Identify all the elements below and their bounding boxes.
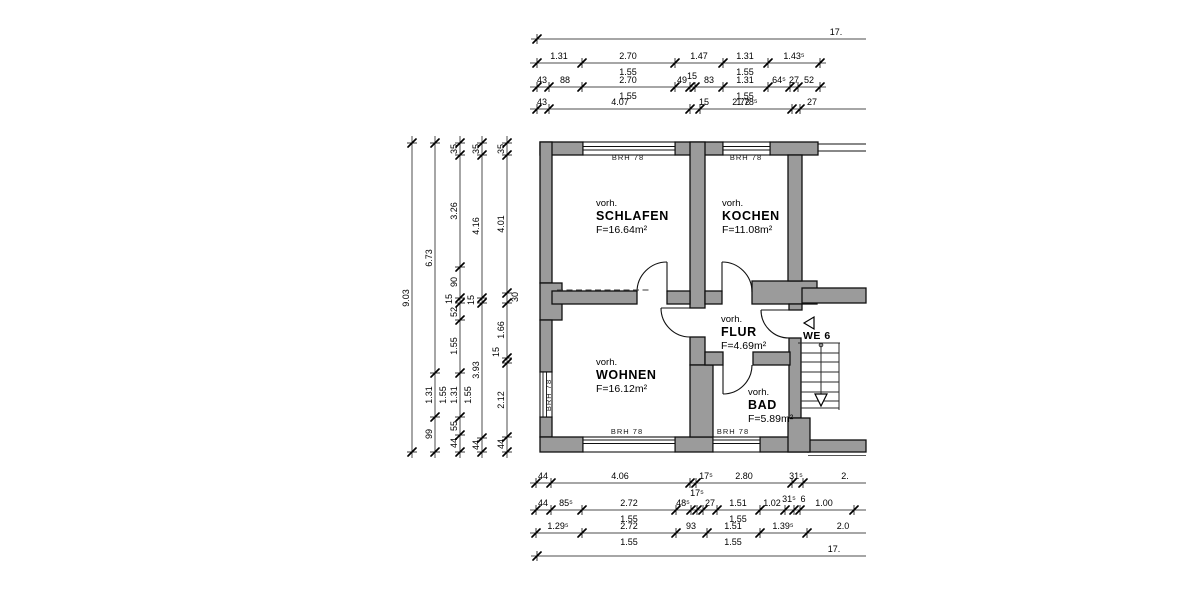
- dim-label: 27: [789, 75, 799, 85]
- wall: [789, 304, 802, 310]
- window-sill-label: BRH 78: [717, 427, 749, 436]
- dim-label: 43: [537, 97, 547, 107]
- room-area: F=16.64m²: [596, 224, 648, 236]
- dim-label: 1.43⁵: [783, 51, 805, 61]
- wall: [540, 437, 583, 452]
- dim-label: 1.47: [690, 51, 708, 61]
- room-name: WOHNEN: [596, 368, 657, 382]
- dim-label: 85⁵: [559, 498, 573, 508]
- wall: [705, 352, 723, 365]
- walls: [540, 142, 866, 452]
- dim-chain: 43882.704915831.3164⁵27521.551.55: [530, 71, 826, 101]
- dim-label: 27: [807, 97, 817, 107]
- window: [583, 437, 675, 452]
- dim-label: 2.12: [496, 391, 506, 409]
- wall: [690, 337, 705, 365]
- dim-label: 4.07: [611, 97, 629, 107]
- room-name: FLUR: [721, 325, 757, 339]
- dim-label: 3.26: [449, 202, 459, 220]
- dim-chain: 1.29⁵2.72931.511.39⁵2.01.551.55: [530, 521, 866, 547]
- window-sill-label: BRH 78: [611, 427, 643, 436]
- room-prefix: vorh.: [722, 198, 743, 209]
- dim-label: 43: [537, 75, 547, 85]
- dim-label: 93: [686, 521, 696, 531]
- stair-direction-arrow-icon: [815, 394, 827, 406]
- dim-label: 35: [449, 144, 459, 154]
- room-label: vorh.BADF=5.89m²: [748, 387, 794, 425]
- window: [713, 437, 760, 452]
- room-name: SCHLAFEN: [596, 209, 669, 223]
- dim-chain: 17.: [531, 544, 866, 561]
- dim-label: 1.55: [724, 537, 742, 547]
- apartment-label: WE 6: [803, 330, 831, 342]
- door-arc: [661, 308, 690, 337]
- dim-label: 35: [496, 144, 506, 154]
- room-label: vorh.SCHLAFENF=16.64m²: [596, 198, 669, 236]
- wall: [540, 142, 552, 283]
- dim-label: 48⁵: [676, 498, 690, 508]
- dim-label: 55: [449, 421, 459, 431]
- dim-label: 15: [687, 71, 697, 81]
- wall: [667, 291, 690, 304]
- dim-label: 17⁵: [690, 488, 704, 498]
- dim-label: 2.70: [619, 51, 637, 61]
- window-sill-label: BRH 78: [730, 153, 762, 162]
- dim-label: 1.00: [815, 498, 833, 508]
- wall: [705, 291, 722, 304]
- wall: [802, 288, 866, 303]
- dim-label: 15: [466, 295, 476, 305]
- dim-label: 1.51: [724, 521, 742, 531]
- dim-label: 49: [677, 75, 687, 85]
- dim-chain: 354.16153.9344: [466, 136, 487, 458]
- dim-label: 44: [496, 439, 506, 449]
- dim-label: 44: [471, 440, 481, 450]
- dim-label: 15: [444, 294, 454, 304]
- dim-label: 1.31: [736, 51, 754, 61]
- dim-chain: 1.312.701.471.311.43⁵1.551.55: [530, 51, 826, 77]
- dim-label: 6.73: [424, 249, 434, 267]
- dim-label: 3.93: [471, 361, 481, 379]
- dim-label: 35: [471, 144, 481, 154]
- dim-chain: 434.07152.721.78⁵27: [530, 97, 866, 114]
- dim-label: 1.39⁵: [772, 521, 794, 531]
- dim-label: 1.78⁵: [736, 97, 758, 107]
- dim-label: 1.29⁵: [547, 521, 569, 531]
- dim-label: 44: [538, 498, 548, 508]
- door-arc: [722, 262, 752, 292]
- dim-chain: 9.03: [401, 136, 417, 458]
- dim-label: 1.55: [463, 386, 473, 404]
- room-label: vorh.WOHNENF=16.12m²: [596, 357, 657, 395]
- dim-label: 17.: [828, 544, 841, 554]
- dim-label: 1.31: [424, 386, 434, 404]
- dim-label: 90: [449, 277, 459, 287]
- dim-label: 44: [449, 438, 459, 448]
- window-sill-label: BRH 78: [544, 379, 553, 411]
- room-prefix: vorh.: [748, 387, 769, 398]
- dim-label: 52: [449, 307, 459, 317]
- dim-chain: 4485⁵2.7248⁵17⁵271.511.0231⁵61.001.551.5…: [530, 488, 866, 524]
- dim-label: 88: [560, 75, 570, 85]
- dim-label: 31⁵: [789, 471, 803, 481]
- room-label: vorh.KOCHENF=11.08m²: [722, 198, 780, 236]
- dim-label: 44: [538, 471, 548, 481]
- dim-label: 30: [510, 292, 520, 302]
- dim-label: 4.16: [471, 217, 481, 235]
- dim-label: 2.80: [735, 471, 753, 481]
- dim-label: 15: [491, 347, 501, 357]
- dim-label: 17.: [830, 27, 843, 37]
- room-area: F=11.08m²: [722, 224, 773, 236]
- wall: [788, 155, 802, 281]
- room-prefix: vorh.: [596, 198, 617, 209]
- dim-label: 1.55: [620, 537, 638, 547]
- wall: [552, 291, 637, 304]
- dim-label: 31⁵: [782, 494, 796, 504]
- floorplan-drawing: 17.1.312.701.471.311.43⁵1.551.5543882.70…: [0, 0, 1200, 600]
- wall: [753, 352, 790, 365]
- dim-chain: 444.0617⁵2.8031⁵2.: [530, 471, 866, 488]
- dim-label: 64⁵: [772, 75, 786, 85]
- dim-label: 99: [424, 429, 434, 439]
- door-arc: [637, 262, 667, 292]
- dim-label: 1.31: [736, 75, 754, 85]
- dim-label: 2.: [841, 471, 849, 481]
- wall: [789, 338, 801, 418]
- dim-label: 2.72: [620, 498, 638, 508]
- wall: [770, 142, 818, 155]
- dim-label: 9.03: [401, 289, 411, 307]
- dim-label: 1.02: [763, 498, 781, 508]
- room-area: F=5.89m²: [748, 413, 794, 425]
- wall: [675, 437, 713, 452]
- dim-label: 4.01: [496, 215, 506, 233]
- room-label: vorh.FLURF=4.69m²: [721, 314, 767, 352]
- dim-label: 2.70: [619, 75, 637, 85]
- room-area: F=16.12m²: [596, 383, 648, 395]
- dim-label: 52: [804, 75, 814, 85]
- wall: [690, 365, 713, 437]
- dim-label: 1.51: [729, 498, 747, 508]
- room-prefix: vorh.: [596, 357, 617, 368]
- wall: [540, 320, 552, 372]
- dim-label: 83: [704, 75, 714, 85]
- dim-label: 2.0: [837, 521, 850, 531]
- dim-label: 27: [705, 498, 715, 508]
- floorplan-canvas: 17.1.312.701.471.311.43⁵1.551.5543882.70…: [0, 0, 1200, 600]
- dim-chain: 354.01301.66152.1244: [491, 136, 520, 458]
- dim-label: 1.66: [496, 321, 506, 339]
- dim-label: 2.72: [620, 521, 638, 531]
- room-area: F=4.69m²: [721, 340, 767, 352]
- window-sill-label: BRH 78: [612, 153, 644, 162]
- staircase: [798, 343, 840, 410]
- dim-label: 1.31: [449, 386, 459, 404]
- wall: [540, 417, 552, 437]
- dim-label: 15: [699, 97, 709, 107]
- room-name: KOCHEN: [722, 209, 780, 223]
- dim-chain: 17.: [531, 27, 866, 44]
- dim-label: 1.55: [438, 386, 448, 404]
- wall: [808, 440, 866, 452]
- dim-label: 6: [800, 494, 805, 504]
- room-prefix: vorh.: [721, 314, 742, 325]
- dim-label: 1.55: [449, 337, 459, 355]
- door-arc: [761, 310, 789, 338]
- dim-label: 1.31: [550, 51, 568, 61]
- entrance-arrow-icon: [804, 317, 814, 329]
- room-name: BAD: [748, 398, 777, 412]
- dim-label: 4.06: [611, 471, 629, 481]
- dim-label: 17⁵: [699, 471, 713, 481]
- wall: [690, 142, 705, 308]
